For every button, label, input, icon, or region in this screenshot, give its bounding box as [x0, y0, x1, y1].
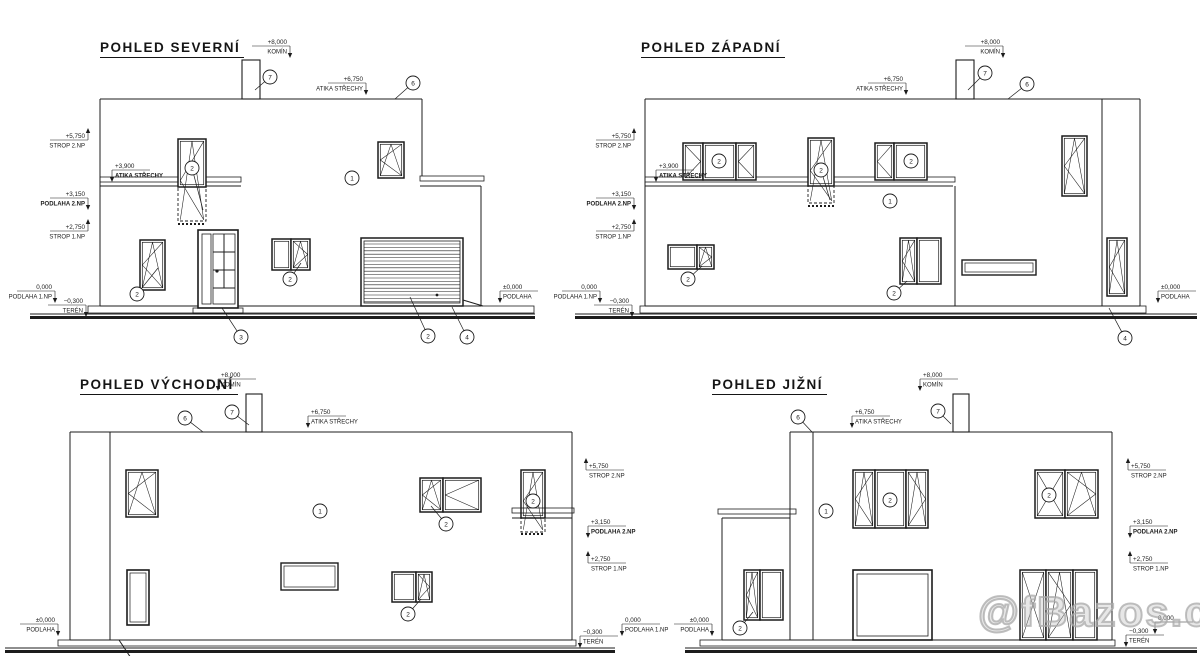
svg-text:0,000: 0,000 [36, 284, 52, 291]
svg-text:+2,750: +2,750 [612, 224, 632, 231]
level-mark: +3,150PODLAHA 2.NP [1128, 519, 1178, 538]
level-mark: +6,750ATIKA STŘECHY [306, 409, 358, 428]
level-mark: +2,750STROP 1.NP [1128, 551, 1169, 573]
svg-text:PODLAHA: PODLAHA [680, 628, 709, 634]
svg-text:0,000: 0,000 [625, 617, 641, 624]
level-mark: +5,750STROP 2.NP [1126, 458, 1167, 480]
svg-text:1: 1 [350, 175, 354, 182]
svg-text:−0,300: −0,300 [64, 298, 84, 305]
svg-text:1: 1 [888, 198, 892, 205]
svg-text:PODLAHA 2.NP: PODLAHA 2.NP [1133, 530, 1177, 536]
svg-text:STROP 1.NP: STROP 1.NP [591, 567, 627, 573]
callout-6: 6 [1008, 77, 1034, 99]
view-west-drawing: +8,000KOMÍN+6,750ATIKA STŘECHY+5,750STRO… [554, 39, 1197, 345]
callout-2: 2 [887, 281, 907, 300]
svg-text:6: 6 [796, 414, 800, 421]
callout-4: 4 [452, 307, 474, 344]
svg-text:1: 1 [824, 508, 828, 515]
svg-text:6: 6 [411, 80, 415, 87]
svg-text:TERÉN: TERÉN [63, 308, 83, 315]
svg-text:4: 4 [465, 334, 469, 341]
level-mark: +6,750ATIKA STŘECHY [850, 409, 902, 428]
svg-text:STROP 2.NP: STROP 2.NP [595, 144, 631, 150]
callout-2: 2 [1042, 488, 1056, 502]
svg-text:2: 2 [426, 333, 430, 340]
svg-text:+6,750: +6,750 [884, 76, 904, 83]
svg-text:PODLAHA: PODLAHA [503, 295, 532, 301]
callout-2: 2 [733, 612, 753, 635]
svg-text:STROP 1.NP: STROP 1.NP [49, 235, 85, 241]
level-mark: ±0,000PODLAHA [1156, 284, 1196, 303]
svg-text:±0,000: ±0,000 [503, 284, 523, 291]
level-mark: +3,150PODLAHA 2.NP [586, 519, 636, 538]
level-mark: +3,150PODLAHA 2.NP [41, 191, 91, 210]
level-mark: +6,750ATIKA STŘECHY [856, 76, 908, 95]
callout-1: 1 [883, 194, 897, 208]
level-mark: ±0,000PODLAHA [498, 284, 538, 303]
svg-text:PODLAHA 2.NP: PODLAHA 2.NP [41, 202, 85, 208]
level-mark: ±0,000PODLAHA [674, 617, 714, 636]
svg-text:±0,000: ±0,000 [36, 617, 56, 624]
callout-7: 7 [931, 404, 951, 424]
svg-text:ATIKA STŘECHY: ATIKA STŘECHY [855, 418, 902, 426]
svg-text:6: 6 [183, 415, 187, 422]
svg-text:2: 2 [686, 276, 690, 283]
svg-text:STROP 2.NP: STROP 2.NP [49, 144, 85, 150]
svg-text:±0,000: ±0,000 [1161, 284, 1181, 291]
svg-text:1: 1 [318, 508, 322, 515]
svg-text:STROP 1.NP: STROP 1.NP [1133, 567, 1169, 573]
callout-2: 2 [904, 154, 918, 168]
svg-text:2: 2 [288, 276, 292, 283]
svg-text:KOMÍN: KOMÍN [267, 49, 287, 56]
svg-text:2: 2 [738, 625, 742, 632]
svg-text:+3,900: +3,900 [115, 163, 135, 170]
svg-text:+8,000: +8,000 [981, 39, 1001, 46]
callout-2: 2 [526, 494, 540, 508]
view-title-south: POHLED JIŽNÍ [712, 377, 827, 395]
svg-text:+2,750: +2,750 [591, 556, 611, 563]
level-mark: +3,150PODLAHA 2.NP [587, 191, 637, 210]
level-mark: +2,750STROP 1.NP [595, 219, 636, 241]
svg-text:2: 2 [717, 158, 721, 165]
svg-text:+8,000: +8,000 [268, 39, 288, 46]
svg-text:+3,150: +3,150 [612, 191, 632, 198]
svg-text:+6,750: +6,750 [855, 409, 875, 416]
view-south-drawing: +8,000KOMÍN+6,750ATIKA STŘECHY+5,750STRO… [674, 372, 1197, 653]
svg-text:+3,150: +3,150 [66, 191, 86, 198]
svg-text:TERÉN: TERÉN [1129, 638, 1149, 645]
level-mark: ±0,000PODLAHA [20, 617, 60, 636]
svg-text:−0,300: −0,300 [583, 629, 603, 636]
callout-6: 6 [178, 411, 203, 432]
level-mark: 0,000PODLAHA 1.NP [554, 284, 603, 303]
svg-text:+5,750: +5,750 [1131, 463, 1151, 470]
level-mark: +3,900ATIKA STŘECHY [110, 163, 163, 182]
level-mark: +6,750ATIKA STŘECHY [316, 76, 368, 95]
svg-text:PODLAHA 2.NP: PODLAHA 2.NP [587, 202, 631, 208]
level-mark: 0,000 [1153, 615, 1193, 634]
level-mark: +2,750STROP 1.NP [49, 219, 90, 241]
svg-text:0,000: 0,000 [581, 284, 597, 291]
svg-text:TERÉN: TERÉN [583, 639, 603, 646]
svg-text:+3,900: +3,900 [659, 163, 679, 170]
svg-text:KOMÍN: KOMÍN [980, 49, 1000, 56]
svg-text:+6,750: +6,750 [344, 76, 364, 83]
callout-6: 6 [791, 410, 812, 432]
view-title-west: POHLED ZÁPADNÍ [641, 40, 785, 58]
level-mark: +8,000KOMÍN [252, 39, 292, 58]
view-title-east: POHLED VÝCHODNÍ [80, 377, 238, 395]
callout-6: 6 [395, 76, 420, 99]
svg-text:STROP 2.NP: STROP 2.NP [589, 474, 625, 480]
level-mark: 0,000PODLAHA 1.NP [9, 284, 58, 303]
svg-text:−0,300: −0,300 [1129, 628, 1149, 635]
svg-text:2: 2 [444, 521, 448, 528]
svg-text:KOMÍN: KOMÍN [923, 382, 943, 389]
svg-text:2: 2 [1047, 492, 1051, 499]
level-mark: +8,000KOMÍN [965, 39, 1005, 58]
callout-7: 7 [968, 66, 992, 90]
svg-text:2: 2 [892, 290, 896, 297]
svg-text:+8,000: +8,000 [923, 372, 943, 379]
view-north-drawing: +8,000KOMÍN+6,750ATIKA STŘECHY+5,750STRO… [9, 39, 538, 344]
callout-7: 7 [225, 405, 249, 425]
level-mark: −0,300TERÉN [578, 629, 618, 648]
level-mark: +5,750STROP 2.NP [584, 458, 625, 480]
svg-text:+6,750: +6,750 [311, 409, 331, 416]
svg-text:+5,750: +5,750 [66, 133, 86, 140]
svg-text:6: 6 [1025, 81, 1029, 88]
level-mark: +2,750STROP 1.NP [586, 551, 627, 573]
svg-text:PODLAHA 1.NP: PODLAHA 1.NP [625, 628, 668, 634]
level-mark: +8,000KOMÍN [918, 372, 958, 391]
svg-text:2: 2 [888, 497, 892, 504]
svg-text:0,000: 0,000 [1158, 615, 1174, 622]
svg-text:2: 2 [909, 158, 913, 165]
svg-text:PODLAHA 1.NP: PODLAHA 1.NP [9, 295, 52, 301]
svg-text:2: 2 [531, 498, 535, 505]
callout-2: 2 [883, 493, 897, 507]
svg-text:2: 2 [135, 291, 139, 298]
view-title-north: POHLED SEVERNÍ [100, 40, 244, 58]
svg-text:TERÉN: TERÉN [609, 308, 629, 315]
svg-text:7: 7 [268, 74, 272, 81]
level-mark: −0,300TERÉN [1124, 628, 1164, 647]
level-mark: +5,750STROP 2.NP [595, 128, 636, 150]
svg-text:+3,150: +3,150 [1133, 519, 1153, 526]
svg-text:STROP 1.NP: STROP 1.NP [595, 235, 631, 241]
svg-text:7: 7 [230, 409, 234, 416]
svg-text:PODLAHA: PODLAHA [1161, 295, 1190, 301]
callout-7: 7 [255, 70, 277, 90]
elevation-sheet: +8,000KOMÍN+6,750ATIKA STŘECHY+5,750STRO… [0, 0, 1200, 656]
svg-text:7: 7 [983, 70, 987, 77]
svg-text:+3,150: +3,150 [591, 519, 611, 526]
drawing-canvas: +8,000KOMÍN+6,750ATIKA STŘECHY+5,750STRO… [0, 0, 1200, 656]
view-east-drawing: +8,000KOMÍN+6,750ATIKA STŘECHY+5,750STRO… [5, 372, 668, 656]
svg-text:+2,750: +2,750 [1133, 556, 1153, 563]
svg-text:ATIKA STŘECHY: ATIKA STŘECHY [311, 418, 358, 426]
svg-text:4: 4 [1123, 335, 1127, 342]
svg-text:ATIKA STŘECHY: ATIKA STŘECHY [316, 85, 363, 93]
callout-2: 2 [712, 154, 726, 168]
svg-text:+2,750: +2,750 [66, 224, 86, 231]
svg-text:−0,300: −0,300 [610, 298, 630, 305]
callout-1: 1 [345, 171, 359, 185]
svg-text:ATIKA STŘECHY: ATIKA STŘECHY [659, 172, 707, 180]
svg-text:±0,000: ±0,000 [690, 617, 710, 624]
svg-text:ATIKA STŘECHY: ATIKA STŘECHY [856, 85, 903, 93]
svg-text:PODLAHA: PODLAHA [26, 628, 55, 634]
level-mark: +5,750STROP 2.NP [49, 128, 90, 150]
svg-text:3: 3 [239, 334, 243, 341]
svg-text:2: 2 [819, 167, 823, 174]
svg-text:PODLAHA 2.NP: PODLAHA 2.NP [591, 530, 635, 536]
svg-text:7: 7 [936, 408, 940, 415]
svg-text:PODLAHA 1.NP: PODLAHA 1.NP [554, 295, 597, 301]
svg-text:2: 2 [190, 165, 194, 172]
svg-text:+5,750: +5,750 [612, 133, 632, 140]
svg-text:ATIKA STŘECHY: ATIKA STŘECHY [115, 172, 163, 180]
callout-1: 1 [819, 504, 833, 518]
level-mark: 0,000PODLAHA 1.NP [620, 617, 669, 636]
svg-text:STROP 2.NP: STROP 2.NP [1131, 474, 1167, 480]
svg-text:+5,750: +5,750 [589, 463, 609, 470]
callout-1: 1 [313, 504, 327, 518]
svg-text:2: 2 [406, 611, 410, 618]
